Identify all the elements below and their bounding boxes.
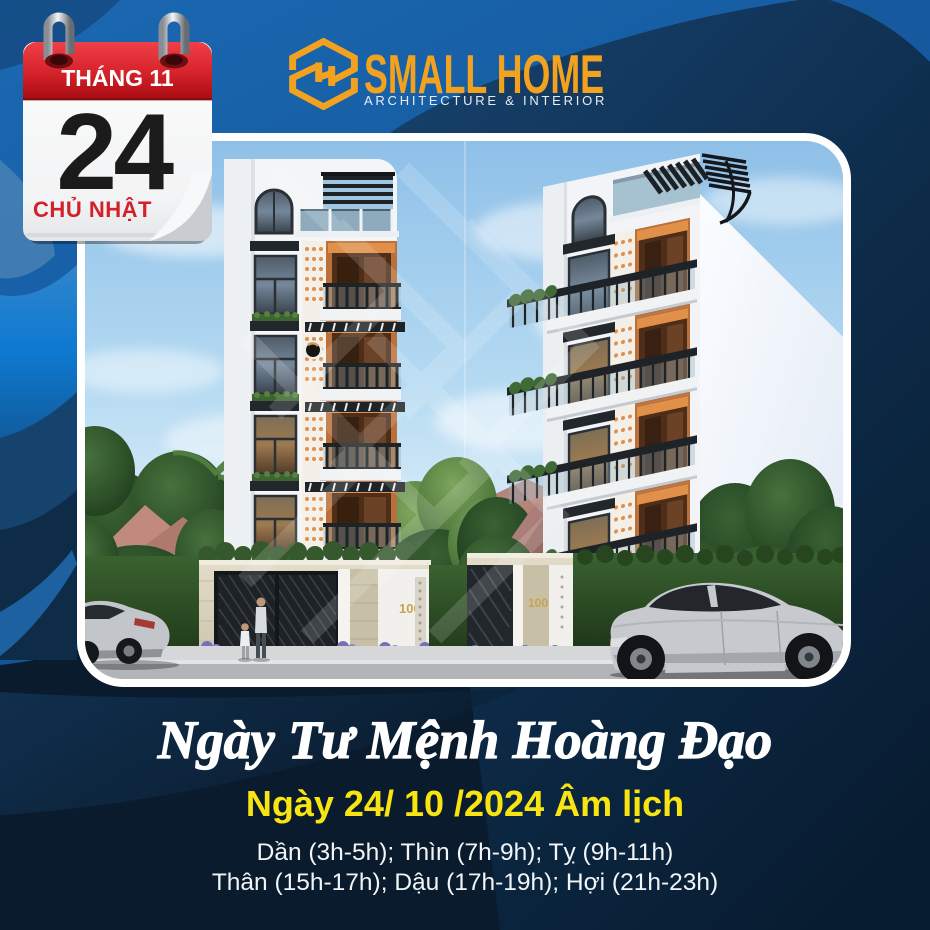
svg-text:100: 100 [528,596,548,610]
